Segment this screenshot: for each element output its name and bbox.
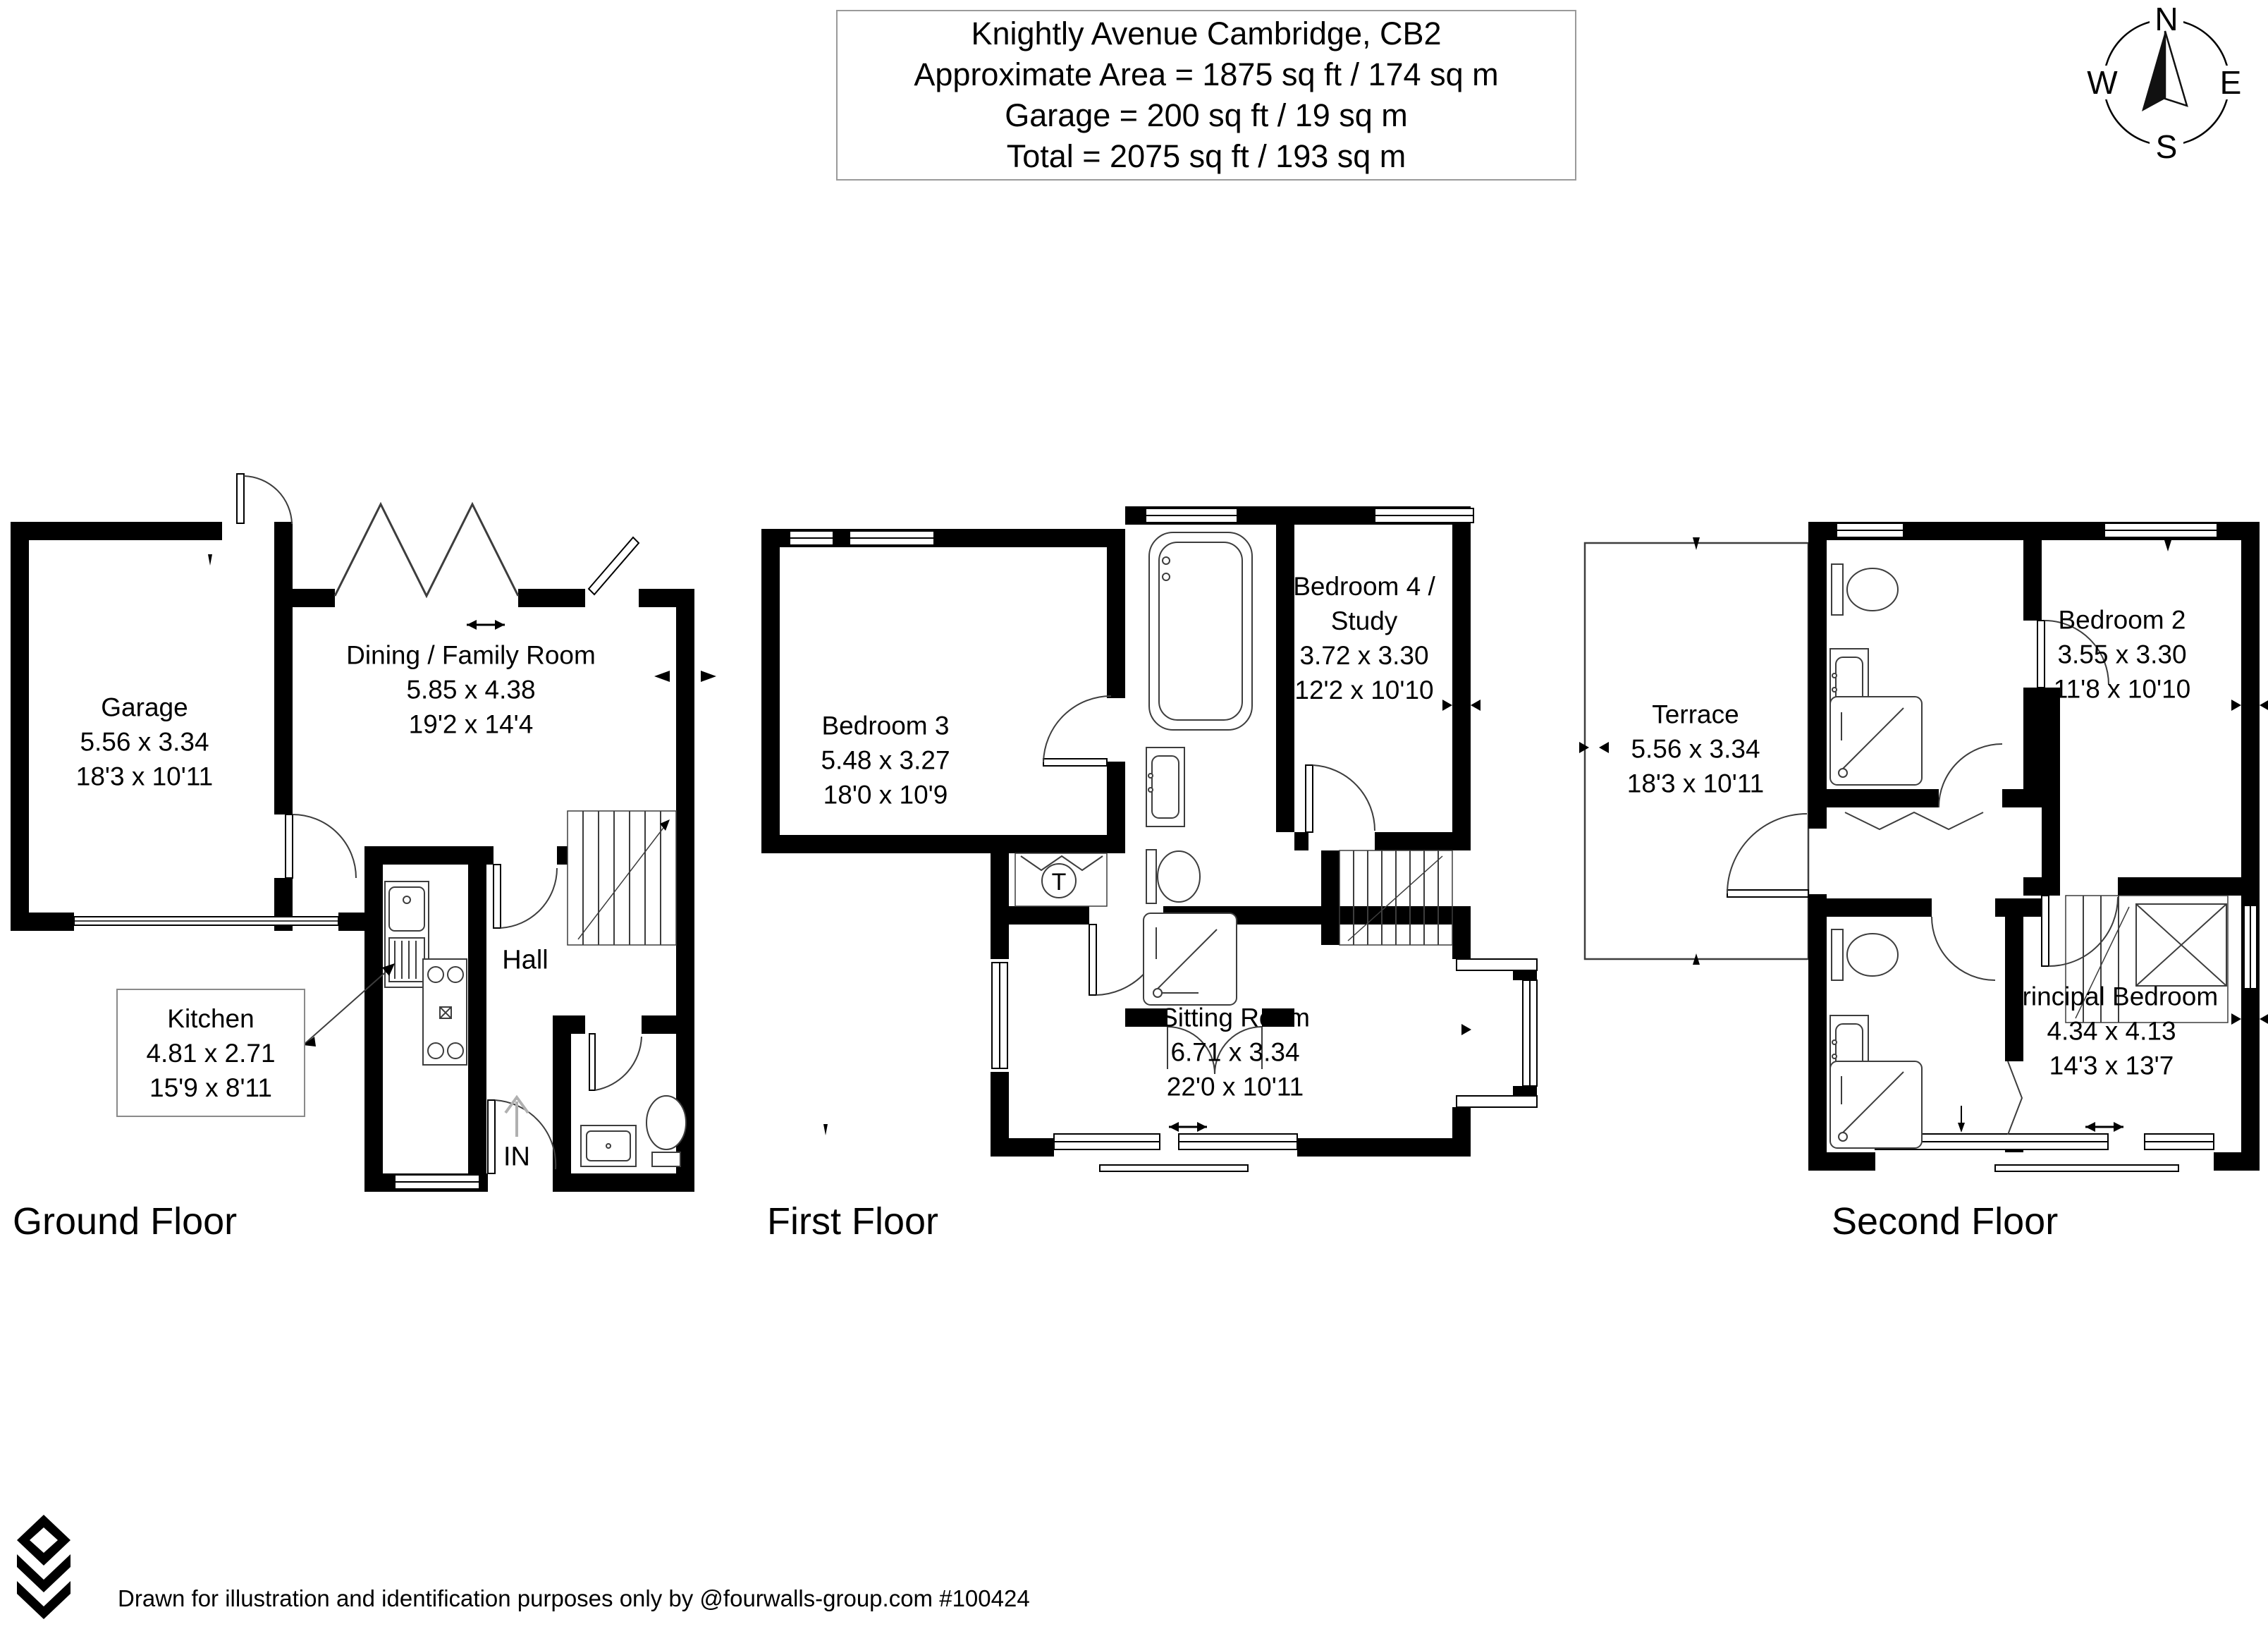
- title-address: Knightly Avenue Cambridge, CB2: [838, 16, 1575, 51]
- room-imperial: 15'9 x 8'11: [118, 1070, 304, 1105]
- room-imperial: 14'3 x 13'7: [2005, 1049, 2218, 1083]
- room-name: Bedroom 2: [2054, 603, 2191, 637]
- room-label-garage: Garage 5.56 x 3.34 18'3 x 10'11: [76, 690, 214, 794]
- wc-basin-icon: [581, 1125, 636, 1166]
- disclaimer-text: Drawn for illustration and identificatio…: [118, 1585, 1030, 1612]
- room-label-kitchen-callout: Kitchen 4.81 x 2.71 15'9 x 8'11: [116, 989, 305, 1117]
- bath-icon: [1149, 532, 1252, 730]
- wc-toilet-icon: [646, 1096, 686, 1166]
- room-metric: 4.81 x 2.71: [118, 1036, 304, 1070]
- room-name: Sitting Room: [1160, 1001, 1310, 1035]
- room-name: Principal Bedroom: [2005, 980, 2218, 1014]
- room-imperial: 22'0 x 10'11: [1160, 1070, 1310, 1104]
- room-imperial: 12'2 x 10'10: [1262, 673, 1466, 707]
- bathroom-shower-icon: [1144, 913, 1237, 1005]
- tank-symbol: T: [1052, 869, 1067, 896]
- room-metric: 4.34 x 4.13: [2005, 1014, 2218, 1049]
- room-name: Kitchen: [118, 1001, 304, 1036]
- room-name: Terrace: [1627, 697, 1765, 732]
- bathroom-basin-icon: [1146, 748, 1184, 826]
- first-stairs: [1340, 850, 1452, 945]
- compass-east-label: E: [2220, 64, 2242, 101]
- ground-tilted-door-leaf: [589, 537, 639, 594]
- room-imperial: 19'2 x 14'4: [346, 707, 596, 742]
- title-block: Knightly Avenue Cambridge, CB2 Approxima…: [836, 10, 1576, 181]
- room-imperial: 11'8 x 10'10: [2054, 672, 2191, 707]
- compass-west-label: W: [2087, 64, 2118, 101]
- room-name: Dining / Family Room: [346, 638, 596, 673]
- room-metric: 3.55 x 3.30: [2054, 637, 2191, 672]
- room-imperial: 18'0 x 10'9: [821, 778, 950, 812]
- floor-name-first: First Floor: [767, 1200, 938, 1243]
- ground-windows: [395, 1175, 479, 1189]
- room-imperial: 18'3 x 10'11: [76, 759, 214, 794]
- room-label-sitting-room: Sitting Room 6.71 x 3.34 22'0 x 10'11: [1160, 1001, 1310, 1104]
- room-metric: 5.56 x 3.34: [1627, 732, 1765, 767]
- room-metric: 5.48 x 3.27: [821, 743, 950, 778]
- room-metric: 6.71 x 3.34: [1160, 1035, 1310, 1070]
- shower-room-2-fixtures: [1830, 929, 1922, 1148]
- room-label-bedroom-2: Bedroom 2 3.55 x 3.30 11'8 x 10'10: [2054, 603, 2191, 707]
- hob-icon: [423, 959, 467, 1065]
- room-label-terrace: Terrace 5.56 x 3.34 18'3 x 10'11: [1627, 697, 1765, 801]
- room-label-principal-bedroom: Principal Bedroom 4.34 x 4.13 14'3 x 13'…: [2005, 980, 2218, 1083]
- compass-south-label: S: [2156, 128, 2178, 165]
- room-metric: 5.85 x 4.38: [346, 673, 596, 707]
- room-name: Bedroom 4 / Study: [1262, 569, 1466, 638]
- title-total-area: Total = 2075 sq ft / 193 sq m: [838, 139, 1575, 174]
- room-name: Garage: [76, 690, 214, 725]
- compass-rose: N E S W: [2087, 0, 2249, 165]
- room-name: Bedroom 3: [821, 709, 950, 743]
- kitchen-sink-icon: [385, 881, 429, 987]
- room-metric: 3.72 x 3.30: [1262, 638, 1466, 673]
- ground-stairs: [568, 811, 676, 945]
- compass-north-label: N: [2154, 1, 2178, 37]
- room-label-bedroom-3: Bedroom 3 5.48 x 3.27 18'0 x 10'9: [821, 709, 950, 812]
- fourwalls-logo: [17, 1515, 71, 1619]
- ground-bifold-doors: [335, 504, 518, 596]
- title-approximate-area: Approximate Area = 1875 sq ft / 174 sq m: [838, 57, 1575, 92]
- floorplan-page: N E S W T Knightly Avenue Cambridge, CB2…: [0, 0, 2268, 1629]
- room-imperial: 18'3 x 10'11: [1627, 767, 1765, 801]
- floor-name-second: Second Floor: [1832, 1200, 2058, 1243]
- hall-label: Hall: [502, 946, 548, 976]
- floor-name-ground: Ground Floor: [13, 1200, 237, 1243]
- ground-garage-door: [74, 917, 338, 925]
- floorplan-drawing: N E S W T: [0, 0, 2268, 1629]
- title-garage-area: Garage = 200 sq ft / 19 sq m: [838, 98, 1575, 133]
- room-label-dining-family: Dining / Family Room 5.85 x 4.38 19'2 x …: [346, 638, 596, 742]
- entrance-in-label: IN: [503, 1142, 530, 1173]
- compass-needle-icon: [2142, 31, 2187, 111]
- room-label-bedroom-4-study: Bedroom 4 / Study 3.72 x 3.30 12'2 x 10'…: [1262, 569, 1466, 707]
- shower-room-1-fixtures: [1830, 564, 1922, 785]
- bathroom-toilet-icon: [1146, 850, 1200, 903]
- room-metric: 5.56 x 3.34: [76, 725, 214, 759]
